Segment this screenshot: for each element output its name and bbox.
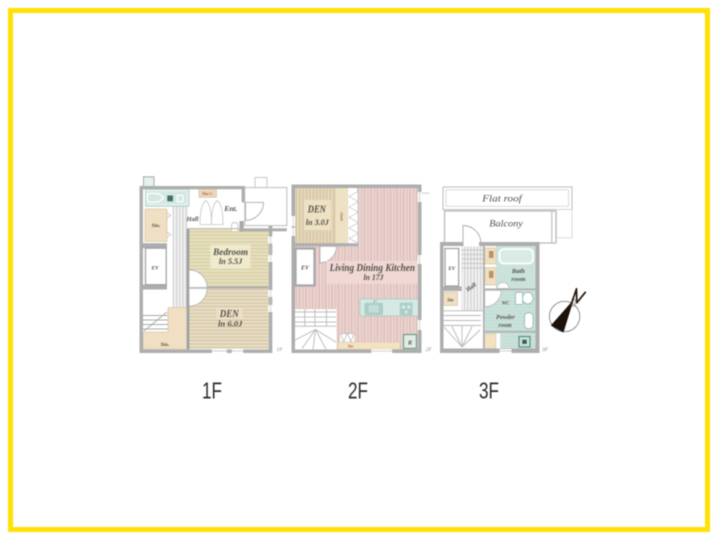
svg-text:ln 5.5J: ln 5.5J [219, 257, 244, 266]
svg-text:Ent.: Ent. [223, 204, 237, 213]
svg-text:EV: EV [150, 266, 160, 272]
svg-text:DEN: DEN [219, 309, 240, 320]
svg-text:Bath: Bath [511, 268, 525, 275]
svg-text:2F: 2F [426, 347, 433, 353]
svg-text:ln 17J: ln 17J [364, 273, 385, 282]
svg-text:Sho·C: Sho·C [202, 191, 213, 196]
svg-text:EV: EV [447, 266, 455, 272]
svg-text:1F: 1F [202, 378, 222, 404]
svg-text:Sto.: Sto. [161, 342, 170, 348]
svg-text:1F: 1F [277, 347, 284, 353]
svg-text:Flat roof: Flat roof [481, 194, 524, 204]
svg-text:EV: EV [300, 266, 310, 272]
svg-text:Sto: Sto [447, 298, 454, 303]
svg-text:3F: 3F [479, 378, 499, 404]
svg-text:ln 3.0J: ln 3.0J [306, 218, 330, 227]
svg-text:2F: 2F [348, 378, 368, 404]
svg-text:Balcony: Balcony [489, 219, 523, 229]
svg-text:Sto: Sto [348, 344, 353, 349]
svg-text:R: R [407, 341, 412, 347]
svg-text:Hall: Hall [186, 216, 199, 223]
svg-text:ln 6.0J: ln 6.0J [218, 320, 243, 329]
svg-text:room: room [498, 323, 511, 329]
svg-text:3F: 3F [541, 347, 549, 353]
svg-text:room: room [511, 276, 525, 283]
svg-text:Sto.: Sto. [152, 223, 161, 229]
svg-text:closet: closet [340, 212, 344, 222]
svg-text:DEN: DEN [307, 205, 327, 216]
svg-text:Powder: Powder [496, 315, 515, 321]
svg-text:WC: WC [502, 302, 510, 307]
